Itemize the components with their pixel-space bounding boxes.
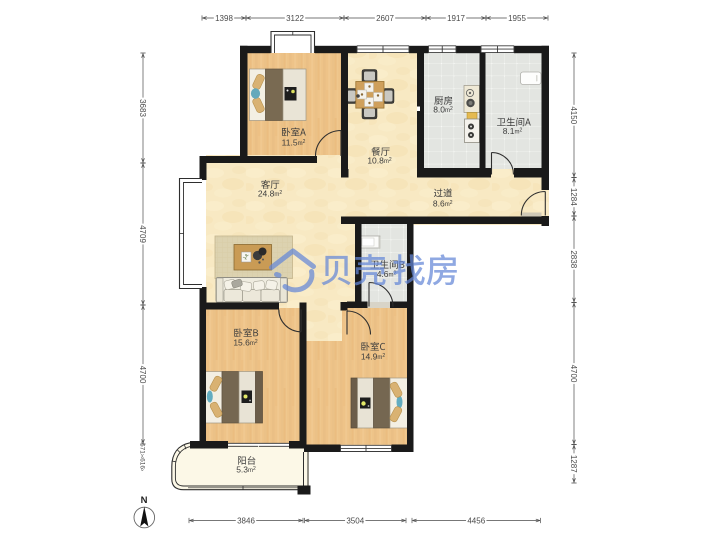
svg-text:4456: 4456 [467, 516, 485, 525]
svg-text:1955: 1955 [508, 14, 526, 23]
svg-text:10.8m2: 10.8m2 [367, 156, 392, 166]
svg-text:3504: 3504 [346, 516, 364, 525]
svg-text:4700: 4700 [569, 365, 578, 383]
svg-text:2607: 2607 [376, 14, 394, 23]
svg-text:1398: 1398 [215, 14, 233, 23]
svg-text:N: N [141, 495, 148, 506]
svg-text:24.8m2: 24.8m2 [258, 189, 283, 199]
svg-text:3683: 3683 [138, 99, 147, 117]
svg-text:4709: 4709 [138, 225, 147, 243]
svg-text:11.5m2: 11.5m2 [282, 138, 306, 148]
svg-text:15.6m2: 15.6m2 [233, 338, 258, 348]
svg-text:4700: 4700 [138, 366, 147, 384]
svg-text:1917: 1917 [447, 14, 465, 23]
svg-text:2838: 2838 [569, 250, 578, 268]
svg-text:14.9m2: 14.9m2 [361, 352, 386, 362]
svg-text:‹671›‹616›: ‹671›‹616› [139, 441, 146, 471]
svg-text:1284: 1284 [569, 188, 578, 206]
svg-text:3122: 3122 [286, 14, 304, 23]
svg-text:3846: 3846 [237, 516, 255, 525]
svg-text:4150: 4150 [569, 106, 578, 124]
svg-text:1287: 1287 [569, 455, 578, 473]
